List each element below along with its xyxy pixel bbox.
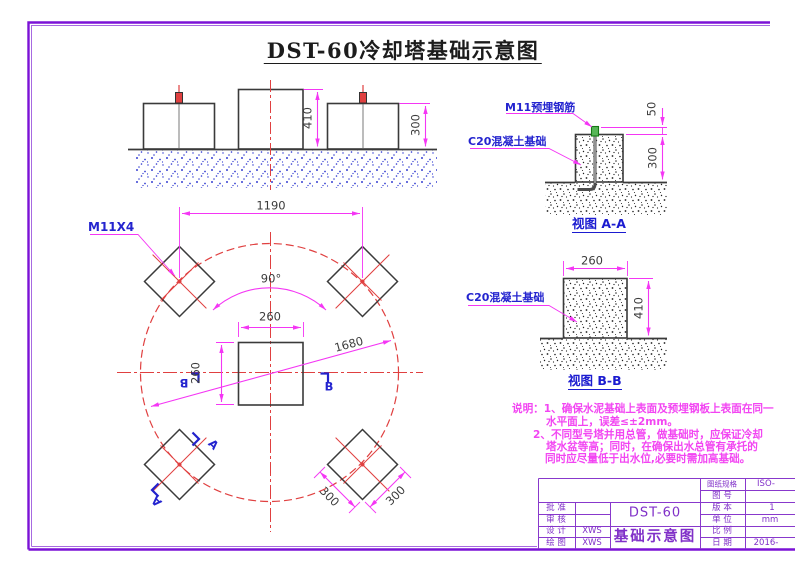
label-concrete-aa: C20混凝土基础 bbox=[468, 136, 546, 147]
leader-concrete bbox=[468, 306, 577, 323]
tb-label-scale: 比 例 bbox=[712, 527, 732, 536]
dim-text-260-top: 260 bbox=[259, 311, 281, 323]
ground-hatch bbox=[135, 150, 437, 188]
angle-arc-90 bbox=[213, 288, 326, 310]
dim-text-260-bb: 260 bbox=[581, 255, 603, 267]
caption-view-bb: 视图 B-B bbox=[568, 375, 622, 390]
drawing-canvas bbox=[0, 0, 800, 565]
elevation-view bbox=[128, 80, 437, 190]
pad-center bbox=[239, 90, 304, 150]
tb-value-sheet-size: ISO- bbox=[757, 480, 775, 489]
tb-label-version: 版 本 bbox=[712, 504, 732, 513]
drawing-sheet: DST-60冷却塔基础示意图 410 300 M11预埋钢筋 C20混凝土基础 … bbox=[0, 0, 800, 565]
foundation-block bbox=[576, 135, 624, 183]
tb-label-approve: 批 准 bbox=[546, 504, 566, 513]
border-frame bbox=[29, 23, 796, 550]
plan-view bbox=[90, 207, 423, 532]
label-rebar: M11预埋钢筋 bbox=[505, 102, 575, 113]
caption-view-aa: 视图 A-A bbox=[572, 218, 626, 233]
tb-drawing-name: 基础示意图 bbox=[614, 530, 697, 545]
dim-text-410-bb: 410 bbox=[633, 297, 645, 319]
tb-value-version: 1 bbox=[769, 504, 774, 513]
tb-label-check: 审 核 bbox=[546, 516, 566, 525]
tb-label-date: 日 期 bbox=[712, 539, 732, 548]
tb-value-date: 2016- bbox=[754, 539, 779, 548]
section-letter-b-left: B bbox=[180, 376, 189, 388]
tb-label-sheet-size: 图纸规格 bbox=[707, 480, 737, 488]
label-concrete-bb: C20混凝土基础 bbox=[466, 292, 544, 303]
tb-label-design: 设 计 bbox=[546, 527, 566, 536]
note-line: 水平面上，误差≤±2mm。 bbox=[546, 417, 678, 428]
leader-concrete bbox=[470, 149, 581, 166]
dim-text-410: 410 bbox=[302, 107, 314, 129]
note-line: 同时应尽量低于出水位,必要时需加高基础。 bbox=[545, 454, 750, 465]
section-letter-b-right: B bbox=[325, 381, 334, 393]
dim-text-300-aa: 300 bbox=[647, 147, 659, 169]
ground-hatch bbox=[545, 183, 667, 215]
label-anchor-bolts: M11X4 bbox=[88, 221, 134, 233]
drawing-title: DST-60冷却塔基础示意图 bbox=[264, 40, 542, 64]
tb-label-number: 图 号 bbox=[712, 492, 732, 501]
ground-hatch bbox=[540, 339, 667, 370]
leader-rebar bbox=[506, 114, 592, 128]
tb-value-unit: mm bbox=[762, 516, 779, 525]
dim-text-50: 50 bbox=[646, 102, 658, 117]
note-line: 塔水盆等高；同时，在确保出水总管有承托的 bbox=[546, 442, 758, 453]
tb-model: DST-60 bbox=[629, 507, 681, 520]
tb-value-draw: XWS bbox=[582, 539, 602, 548]
dim-text-1190: 1190 bbox=[256, 200, 285, 212]
tb-value-design: XWS bbox=[582, 527, 602, 536]
dim-text-300: 300 bbox=[410, 114, 422, 136]
tb-label-unit: 单 位 bbox=[712, 516, 732, 525]
anchor-bolt-left bbox=[176, 93, 183, 104]
foundation-block bbox=[564, 279, 628, 339]
anchor-bolt-right bbox=[360, 93, 367, 104]
leader-anchor bbox=[90, 235, 175, 277]
note-line: 说明：1、确保水泥基础上表面及预埋钢板上表面在同一 bbox=[512, 404, 774, 415]
rebar-cap bbox=[592, 127, 599, 137]
dim-text-260-left: 260 bbox=[190, 362, 202, 384]
dim-text-90deg: 90° bbox=[261, 273, 281, 285]
section-mark-a-upper bbox=[193, 433, 200, 446]
tb-label-draw: 绘 图 bbox=[546, 539, 566, 548]
view-a-a bbox=[470, 108, 667, 215]
note-line: 2、不同型号塔并用总管，做基础时，应保证冷却 bbox=[533, 430, 763, 441]
